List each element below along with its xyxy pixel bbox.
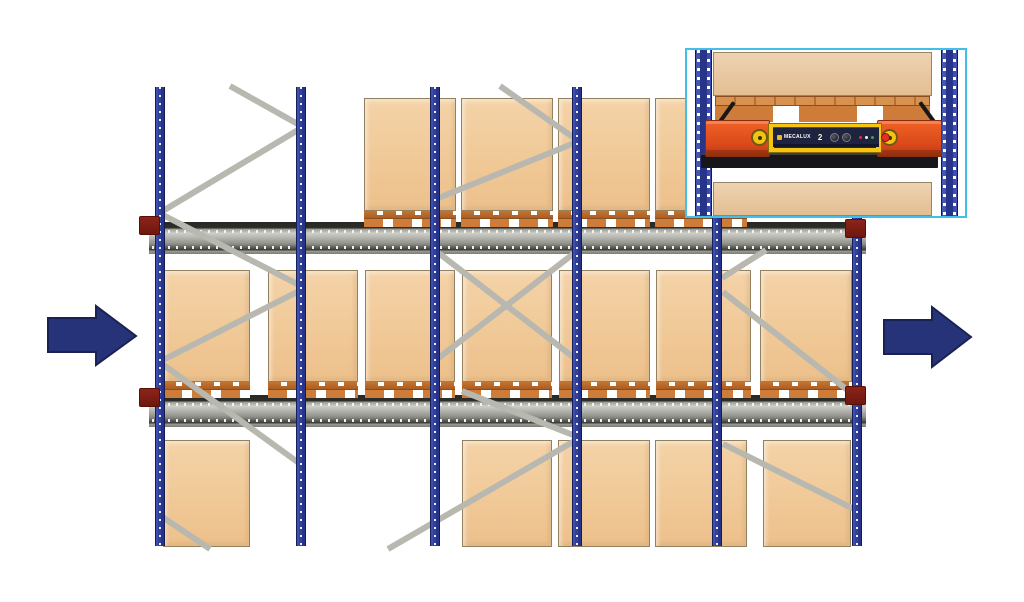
mecalux-logo-icon xyxy=(777,135,782,140)
shuttle-knob-icon xyxy=(830,133,839,142)
shuttle-knob-icon xyxy=(842,133,851,142)
status-light-red-icon xyxy=(859,136,862,139)
pallet xyxy=(462,382,552,398)
rail-bracket xyxy=(845,386,866,405)
pallet xyxy=(760,382,852,398)
pallet-load-box xyxy=(760,270,852,382)
shuttle-brand-label: MECALUX xyxy=(784,134,811,140)
rack-upright xyxy=(155,87,165,546)
rack-upright xyxy=(296,87,306,546)
inset-pallet-load-top xyxy=(713,52,932,96)
pallet-load-box xyxy=(365,270,455,382)
pallet-load-box xyxy=(163,440,250,547)
pallet-shuttle-housing: MECALUX 2 xyxy=(768,123,882,153)
pallet xyxy=(365,382,455,398)
status-light-green-icon xyxy=(871,136,874,139)
pallet xyxy=(163,382,250,398)
inset-pallet xyxy=(715,96,930,122)
rack-upright xyxy=(572,87,582,546)
shuttle-detail-inset: MECALUX 2 xyxy=(685,48,967,218)
pallet-load-box xyxy=(763,440,851,547)
pallet-load-box xyxy=(461,98,553,211)
pallet-load-box xyxy=(462,270,552,382)
pallet-deck-boards xyxy=(715,96,930,106)
shuttle-unit-number: 2 xyxy=(818,133,822,142)
pallet-load-box xyxy=(655,440,747,547)
pallet-load-box xyxy=(656,270,751,382)
pallet xyxy=(461,211,553,227)
pallet-load-box xyxy=(364,98,456,211)
pallet xyxy=(268,382,358,398)
pallet xyxy=(364,211,456,227)
status-light-white-icon xyxy=(865,136,868,139)
pallet-load-box xyxy=(462,440,552,547)
rail-bracket xyxy=(845,219,866,238)
pallet-load-box xyxy=(163,270,250,382)
pallet xyxy=(656,382,751,398)
shuttle-control-panel: MECALUX 2 xyxy=(773,127,879,147)
shuttle-clamp-left-icon xyxy=(751,129,768,146)
shuttle-rail xyxy=(149,395,866,427)
rail-bracket xyxy=(139,388,160,407)
inset-pallet-load-bottom xyxy=(713,182,932,216)
inset-upright-right xyxy=(941,50,958,216)
rail-bracket xyxy=(139,216,160,235)
rack-upright xyxy=(430,87,440,546)
emergency-stop-icon xyxy=(881,133,890,142)
pallet-load-box xyxy=(268,270,358,382)
pallet-shuttle-rack-diagram: MECALUX 2 xyxy=(0,0,1024,602)
